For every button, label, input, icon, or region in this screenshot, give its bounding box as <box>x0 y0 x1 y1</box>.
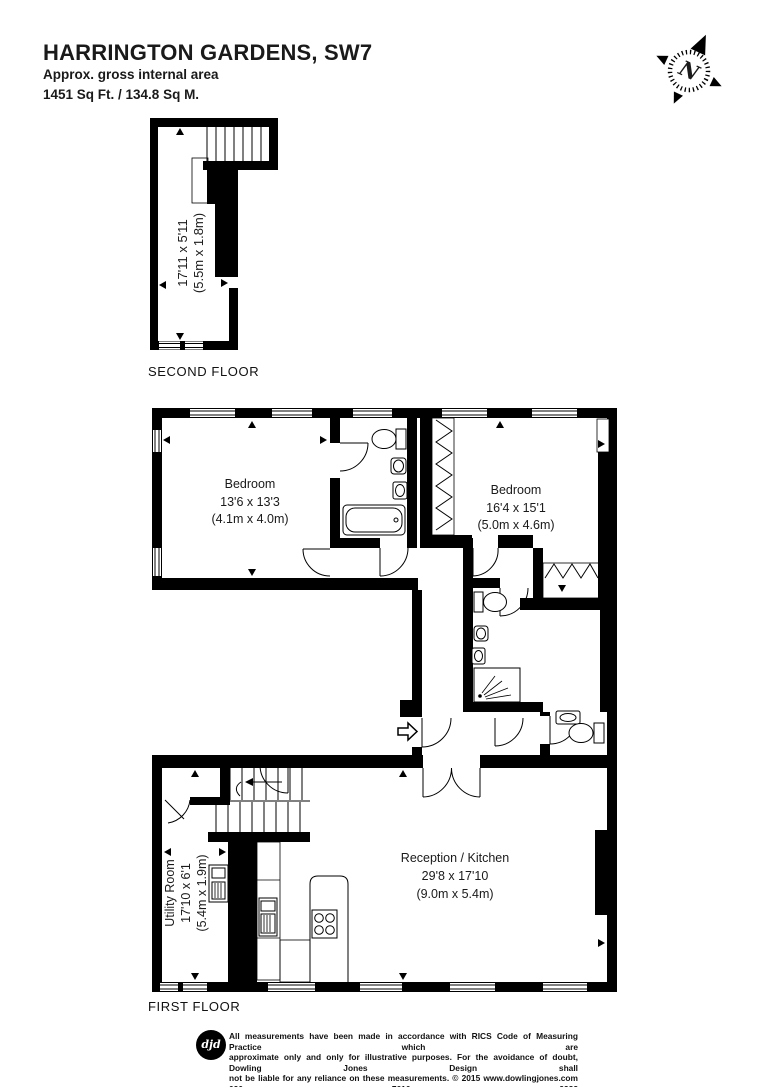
door-swing <box>303 549 330 576</box>
room-dims-metric: (4.1m x 4.0m) <box>211 512 288 526</box>
toilet-symbol <box>372 429 406 449</box>
kitchen-counter <box>257 842 310 982</box>
room-name: Bedroom <box>225 477 276 491</box>
hob-symbol <box>312 910 337 938</box>
sink-symbol <box>556 711 580 724</box>
staircase-symbol <box>207 127 261 161</box>
walls <box>150 118 278 350</box>
sink-symbol <box>393 482 407 499</box>
bedroom2-label: Bedroom 16'4 x 15'1 (5.0m x 4.6m) <box>477 483 554 532</box>
entrance-door-swing <box>422 718 451 747</box>
utility-label: Utility Room 17'10 x 6'1 (5.4m x 1.9m) <box>163 854 209 931</box>
shower-symbol <box>474 668 520 702</box>
room-dims-metric: (5.0m x 4.6m) <box>477 518 554 532</box>
toilet-symbol <box>474 592 507 612</box>
floor-plan-canvas: N <box>0 0 767 1087</box>
door-swing <box>340 443 368 471</box>
dishwasher-symbol <box>259 898 277 936</box>
door-swing <box>165 800 190 823</box>
room-dims-imperial: 13'6 x 13'3 <box>220 495 280 509</box>
second-floor-plan: 17'11 x 5'11 (5.5m x 1.8m) <box>150 118 278 350</box>
disclaimer-line-2: approximate only and only for illustrati… <box>229 1052 578 1073</box>
compass-needle-icon <box>691 31 714 55</box>
room-name: Reception / Kitchen <box>401 851 509 865</box>
bidet-symbol <box>474 626 488 641</box>
first-floor-plan: Bedroom 13'6 x 13'3 (4.1m x 4.0m) Bedroo… <box>152 408 617 992</box>
entrance-arrow <box>398 723 417 740</box>
stair-direction-arrow <box>236 778 282 796</box>
second-floor-label: SECOND FLOOR <box>148 364 259 379</box>
toilet-symbol <box>569 723 604 743</box>
disclaimer-line-1: All measurements have been made in accor… <box>229 1031 578 1052</box>
disclaimer-line-3: not be liable for any reliance on these … <box>229 1073 578 1087</box>
door-swing <box>473 548 498 576</box>
french-doors <box>423 768 480 797</box>
room-name: Utility Room <box>163 859 177 926</box>
door-swing <box>380 548 408 576</box>
room-dims-metric: (9.0m x 5.4m) <box>416 887 493 901</box>
bidet-symbol <box>391 458 406 474</box>
reception-label: Reception / Kitchen 29'8 x 17'10 (9.0m x… <box>401 851 509 901</box>
room-dims-imperial: 17'10 x 6'1 <box>179 863 193 923</box>
sink-symbol <box>472 648 485 664</box>
disclaimer-text: All measurements have been made in accor… <box>229 1031 578 1087</box>
compass-north-label: N <box>674 55 704 87</box>
washer-symbol <box>209 865 228 902</box>
room-name: Bedroom <box>491 483 542 497</box>
kitchen-island <box>310 876 348 982</box>
second-room-dims-imperial: 17'11 x 5'11 <box>175 219 190 286</box>
bedroom1-label: Bedroom 13'6 x 13'3 (4.1m x 4.0m) <box>211 477 288 526</box>
compass-rose: N <box>641 20 738 119</box>
bathtub-symbol <box>343 505 405 535</box>
first-floor-label: FIRST FLOOR <box>148 999 240 1014</box>
djd-logo: djd <box>196 1030 226 1060</box>
door-swing <box>260 765 288 793</box>
floorplan-page: HARRINGTON GARDENS, SW7 Approx. gross in… <box>0 0 767 1087</box>
second-room-dims-metric: (5.5m x 1.8m) <box>191 213 206 293</box>
room-dims-imperial: 16'4 x 15'1 <box>486 501 546 515</box>
door-swing <box>495 718 523 746</box>
room-dims-metric: (5.4m x 1.9m) <box>195 854 209 931</box>
room-dims-imperial: 29'8 x 17'10 <box>422 869 489 883</box>
